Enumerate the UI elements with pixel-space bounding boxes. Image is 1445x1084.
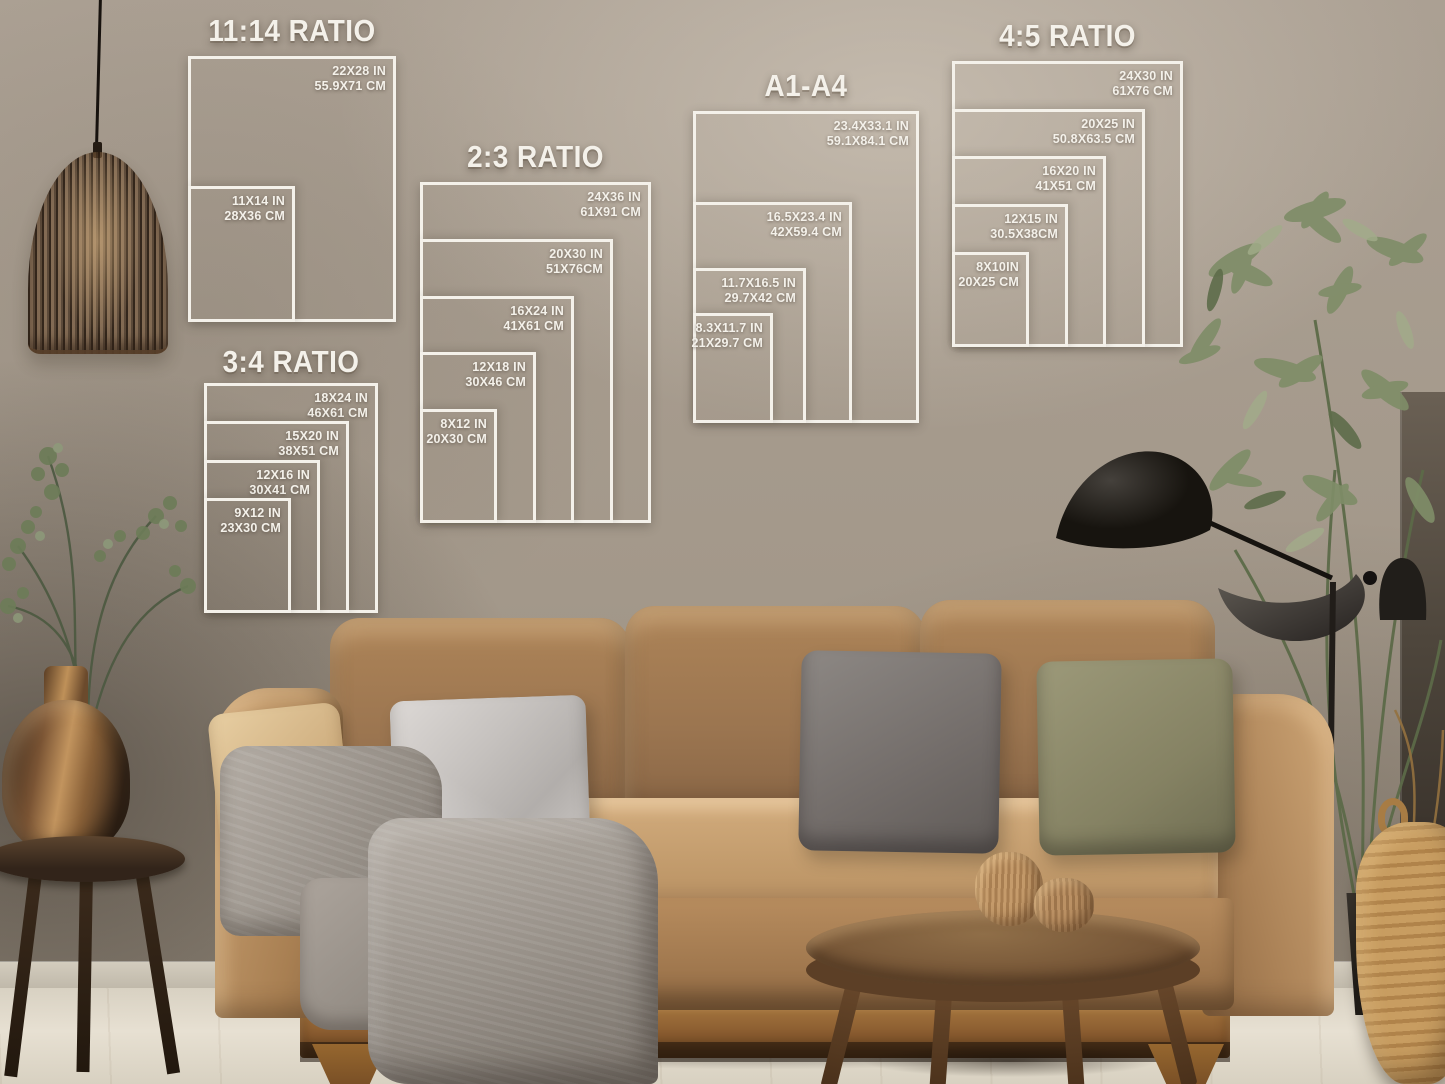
size-label-20x25: 20X25 IN 50.8X63.5 CM <box>1053 117 1135 147</box>
size-in: 12X18 IN <box>465 360 526 375</box>
chart-title-2-3: 2:3 RATIO <box>416 139 655 175</box>
size-in: 8.3X11.7 IN <box>692 321 763 336</box>
size-label-12x16: 12X16 IN 30X41 CM <box>249 468 310 498</box>
decor-vase-small <box>1034 878 1094 932</box>
size-label-a2: 16.5X23.4 IN 42X59.4 CM <box>767 210 842 240</box>
size-label-15x20: 15X20 IN 38X51 CM <box>278 429 339 459</box>
size-cm: 30X41 CM <box>249 483 310 498</box>
size-cm: 30.5X38CM <box>990 227 1058 242</box>
size-chart-3-4-ratio: 3:4 RATIO 18X24 IN 46X61 CM 15X20 IN 38X… <box>204 383 378 613</box>
bronze-vase <box>2 700 130 854</box>
size-cm: 21X29.7 CM <box>692 336 763 351</box>
size-label-24x30: 24X30 IN 61X76 CM <box>1112 69 1173 99</box>
size-in: 11.7X16.5 IN <box>721 276 796 291</box>
size-label-24x36: 24X36 IN 61X91 CM <box>580 190 641 220</box>
size-cm: 46X61 CM <box>307 406 368 421</box>
size-in: 16X24 IN <box>503 304 564 319</box>
size-label-9x12: 9X12 IN 23X30 CM <box>220 506 281 536</box>
size-in: 23.4X33.1 IN <box>827 119 909 134</box>
size-in: 24X30 IN <box>1112 69 1173 84</box>
size-cm: 59.1X84.1 CM <box>827 134 909 149</box>
size-in: 20X30 IN <box>546 247 603 262</box>
size-label-8x10: 8X10IN 20X25 CM <box>958 260 1019 290</box>
size-label-a1: 23.4X33.1 IN 59.1X84.1 CM <box>827 119 909 149</box>
decor-vase-large <box>975 852 1043 926</box>
size-rect-8x10: 8X10IN 20X25 CM <box>952 252 1029 347</box>
chart-title-3-4: 3:4 RATIO <box>197 344 384 380</box>
size-in: 12X16 IN <box>249 468 310 483</box>
throw-blanket-drape <box>368 818 658 1084</box>
size-cm: 41X61 CM <box>503 319 564 334</box>
size-cm: 55.9X71 CM <box>315 79 386 94</box>
size-in: 18X24 IN <box>307 391 368 406</box>
size-label-a4: 8.3X11.7 IN 21X29.7 CM <box>692 321 763 351</box>
size-cm: 29.7X42 CM <box>721 291 796 306</box>
size-in: 16.5X23.4 IN <box>767 210 842 225</box>
size-label-16x24: 16X24 IN 41X61 CM <box>503 304 564 334</box>
size-cm: 42X59.4 CM <box>767 225 842 240</box>
size-in: 12X15 IN <box>990 212 1058 227</box>
size-label-22x28: 22X28 IN 55.9X71 CM <box>315 64 386 94</box>
size-in: 22X28 IN <box>315 64 386 79</box>
living-room-scene: 11:14 RATIO 22X28 IN 55.9X71 CM 11X14 IN… <box>0 0 1445 1084</box>
size-in: 15X20 IN <box>278 429 339 444</box>
size-cm: 20X25 CM <box>958 275 1019 290</box>
size-cm: 50.8X63.5 CM <box>1053 132 1135 147</box>
lamp-arm <box>1208 522 1332 578</box>
pillow-dark-gray <box>798 650 1001 853</box>
size-rect-a4: 8.3X11.7 IN 21X29.7 CM <box>693 313 773 423</box>
size-rect-8x12: 8X12 IN 20X30 CM <box>420 409 497 523</box>
size-cm: 23X30 CM <box>220 521 281 536</box>
size-cm: 20X30 CM <box>426 432 487 447</box>
lamp-joint <box>1363 571 1377 585</box>
size-cm: 41X51 CM <box>1035 179 1096 194</box>
size-cm: 38X51 CM <box>278 444 339 459</box>
lamp-shade-small <box>1379 558 1426 620</box>
size-chart-a1-a4: A1-A4 23.4X33.1 IN 59.1X84.1 CM 16.5X23.… <box>693 111 919 423</box>
size-label-11x14: 11X14 IN 28X36 CM <box>224 194 285 224</box>
size-cm: 61X91 CM <box>580 205 641 220</box>
size-label-20x30: 20X30 IN 51X76CM <box>546 247 603 277</box>
size-in: 8X10IN <box>958 260 1019 275</box>
size-in: 16X20 IN <box>1035 164 1096 179</box>
size-in: 8X12 IN <box>426 417 487 432</box>
size-chart-2-3-ratio: 2:3 RATIO 24X36 IN 61X91 CM 20X30 IN 51X… <box>420 182 651 523</box>
size-label-16x20: 16X20 IN 41X51 CM <box>1035 164 1096 194</box>
size-in: 9X12 IN <box>220 506 281 521</box>
size-label-12x15: 12X15 IN 30.5X38CM <box>990 212 1058 242</box>
size-cm: 28X36 CM <box>224 209 285 224</box>
eucalyptus-plant <box>0 396 210 728</box>
size-label-12x18: 12X18 IN 30X46 CM <box>465 360 526 390</box>
size-cm: 30X46 CM <box>465 375 526 390</box>
chart-title-a1-a4: A1-A4 <box>689 68 923 104</box>
size-chart-11-14-ratio: 11:14 RATIO 22X28 IN 55.9X71 CM 11X14 IN… <box>188 56 396 322</box>
size-rect-11x14: 11X14 IN 28X36 CM <box>188 186 295 322</box>
coffee-table-shadow <box>800 1038 1220 1084</box>
size-rect-9x12: 9X12 IN 23X30 CM <box>204 498 291 613</box>
lamp-shade-large <box>1056 451 1212 548</box>
size-label-a3: 11.7X16.5 IN 29.7X42 CM <box>721 276 796 306</box>
chart-title-4-5: 4:5 RATIO <box>948 18 1187 54</box>
pillow-olive <box>1036 658 1235 855</box>
chart-title-11-14: 11:14 RATIO <box>183 13 401 49</box>
size-in: 20X25 IN <box>1053 117 1135 132</box>
size-label-18x24: 18X24 IN 46X61 CM <box>307 391 368 421</box>
size-cm: 51X76CM <box>546 262 603 277</box>
size-label-8x12: 8X12 IN 20X30 CM <box>426 417 487 447</box>
lamp-shade-curved <box>1218 574 1365 641</box>
size-in: 11X14 IN <box>224 194 285 209</box>
size-cm: 61X76 CM <box>1112 84 1173 99</box>
size-in: 24X36 IN <box>580 190 641 205</box>
